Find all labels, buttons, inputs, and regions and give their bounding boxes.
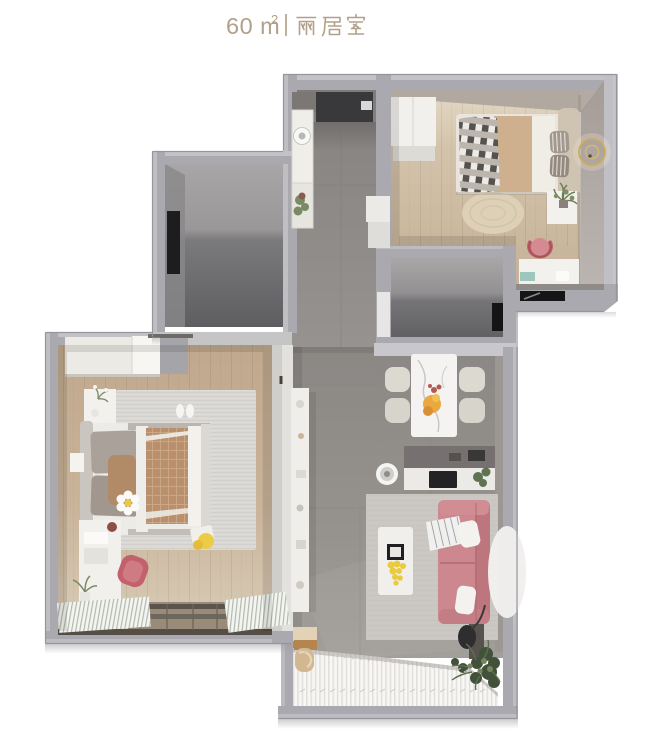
svg-text:2: 2 <box>271 12 278 27</box>
